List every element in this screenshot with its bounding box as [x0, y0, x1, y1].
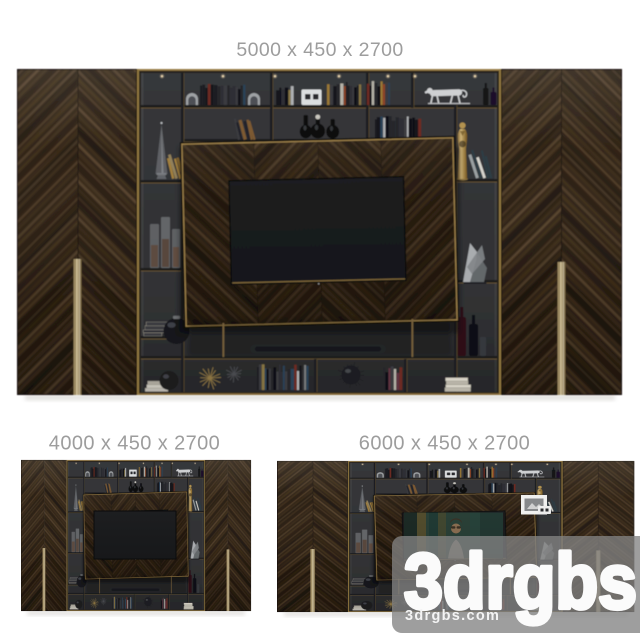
svg-text:6000 x 450 x 2700: 6000 x 450 x 2700 — [359, 433, 530, 455]
svg-text:3drgbs.com: 3drgbs.com — [405, 608, 500, 624]
svg-text:4000 x 450 x 2700: 4000 x 450 x 2700 — [49, 433, 220, 455]
svg-text:5000 x 450 x 2700: 5000 x 450 x 2700 — [236, 39, 403, 61]
